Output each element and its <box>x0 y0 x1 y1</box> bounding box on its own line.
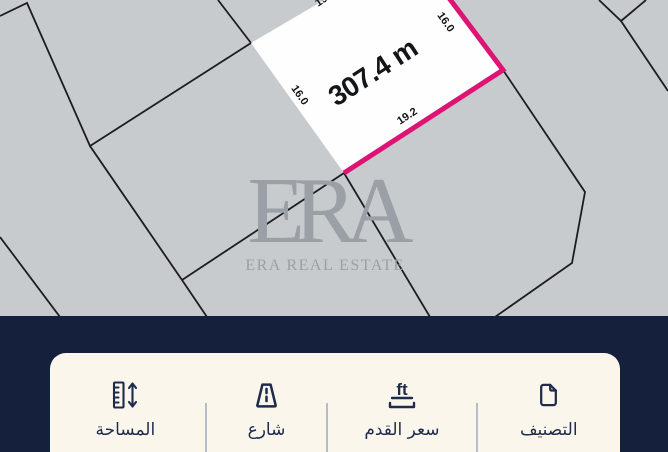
panel-divider <box>326 403 328 452</box>
feature-cell-area: المساحة <box>46 353 206 452</box>
parcel-boundary <box>0 237 60 316</box>
ft-unit-icon: ft <box>384 379 420 411</box>
parcel-boundary <box>599 0 668 91</box>
ruler-height-icon <box>110 379 140 411</box>
panel-divider <box>476 403 478 452</box>
parcel-boundary <box>621 0 646 21</box>
ft-unit-text: ft <box>396 380 408 399</box>
feature-label-street: شارع <box>248 420 286 440</box>
feature-cell-price-per-foot: ft سعر القدم <box>328 353 476 452</box>
document-icon <box>535 379 562 411</box>
panel-divider <box>205 403 207 452</box>
listing-image[interactable]: 307.4 m 19.2 16.0 19.2 16.0 ERA ERA REAL… <box>0 0 668 452</box>
feature-label-price-per-foot: سعر القدم <box>364 420 439 440</box>
map-canvas: 307.4 m 19.2 16.0 19.2 16.0 <box>0 0 668 316</box>
footer-band: التصنيف ft سعر القدم <box>0 316 668 452</box>
feature-label-classification: التصنيف <box>520 420 578 440</box>
parcel-boundary <box>344 173 430 316</box>
parcel-boundary <box>182 173 344 280</box>
plot-map: 307.4 m 19.2 16.0 19.2 16.0 ERA ERA REAL… <box>0 0 668 316</box>
feature-cell-street: شارع <box>207 353 327 452</box>
parcel-boundary <box>218 0 251 43</box>
parcel-boundary <box>495 70 585 316</box>
parcel-boundary <box>0 3 207 316</box>
features-panel: التصنيف ft سعر القدم <box>50 353 620 452</box>
feature-cell-classification: التصنيف <box>478 353 621 452</box>
parcel-boundary <box>90 43 251 146</box>
road-icon <box>252 379 281 411</box>
feature-label-area: المساحة <box>95 420 155 440</box>
